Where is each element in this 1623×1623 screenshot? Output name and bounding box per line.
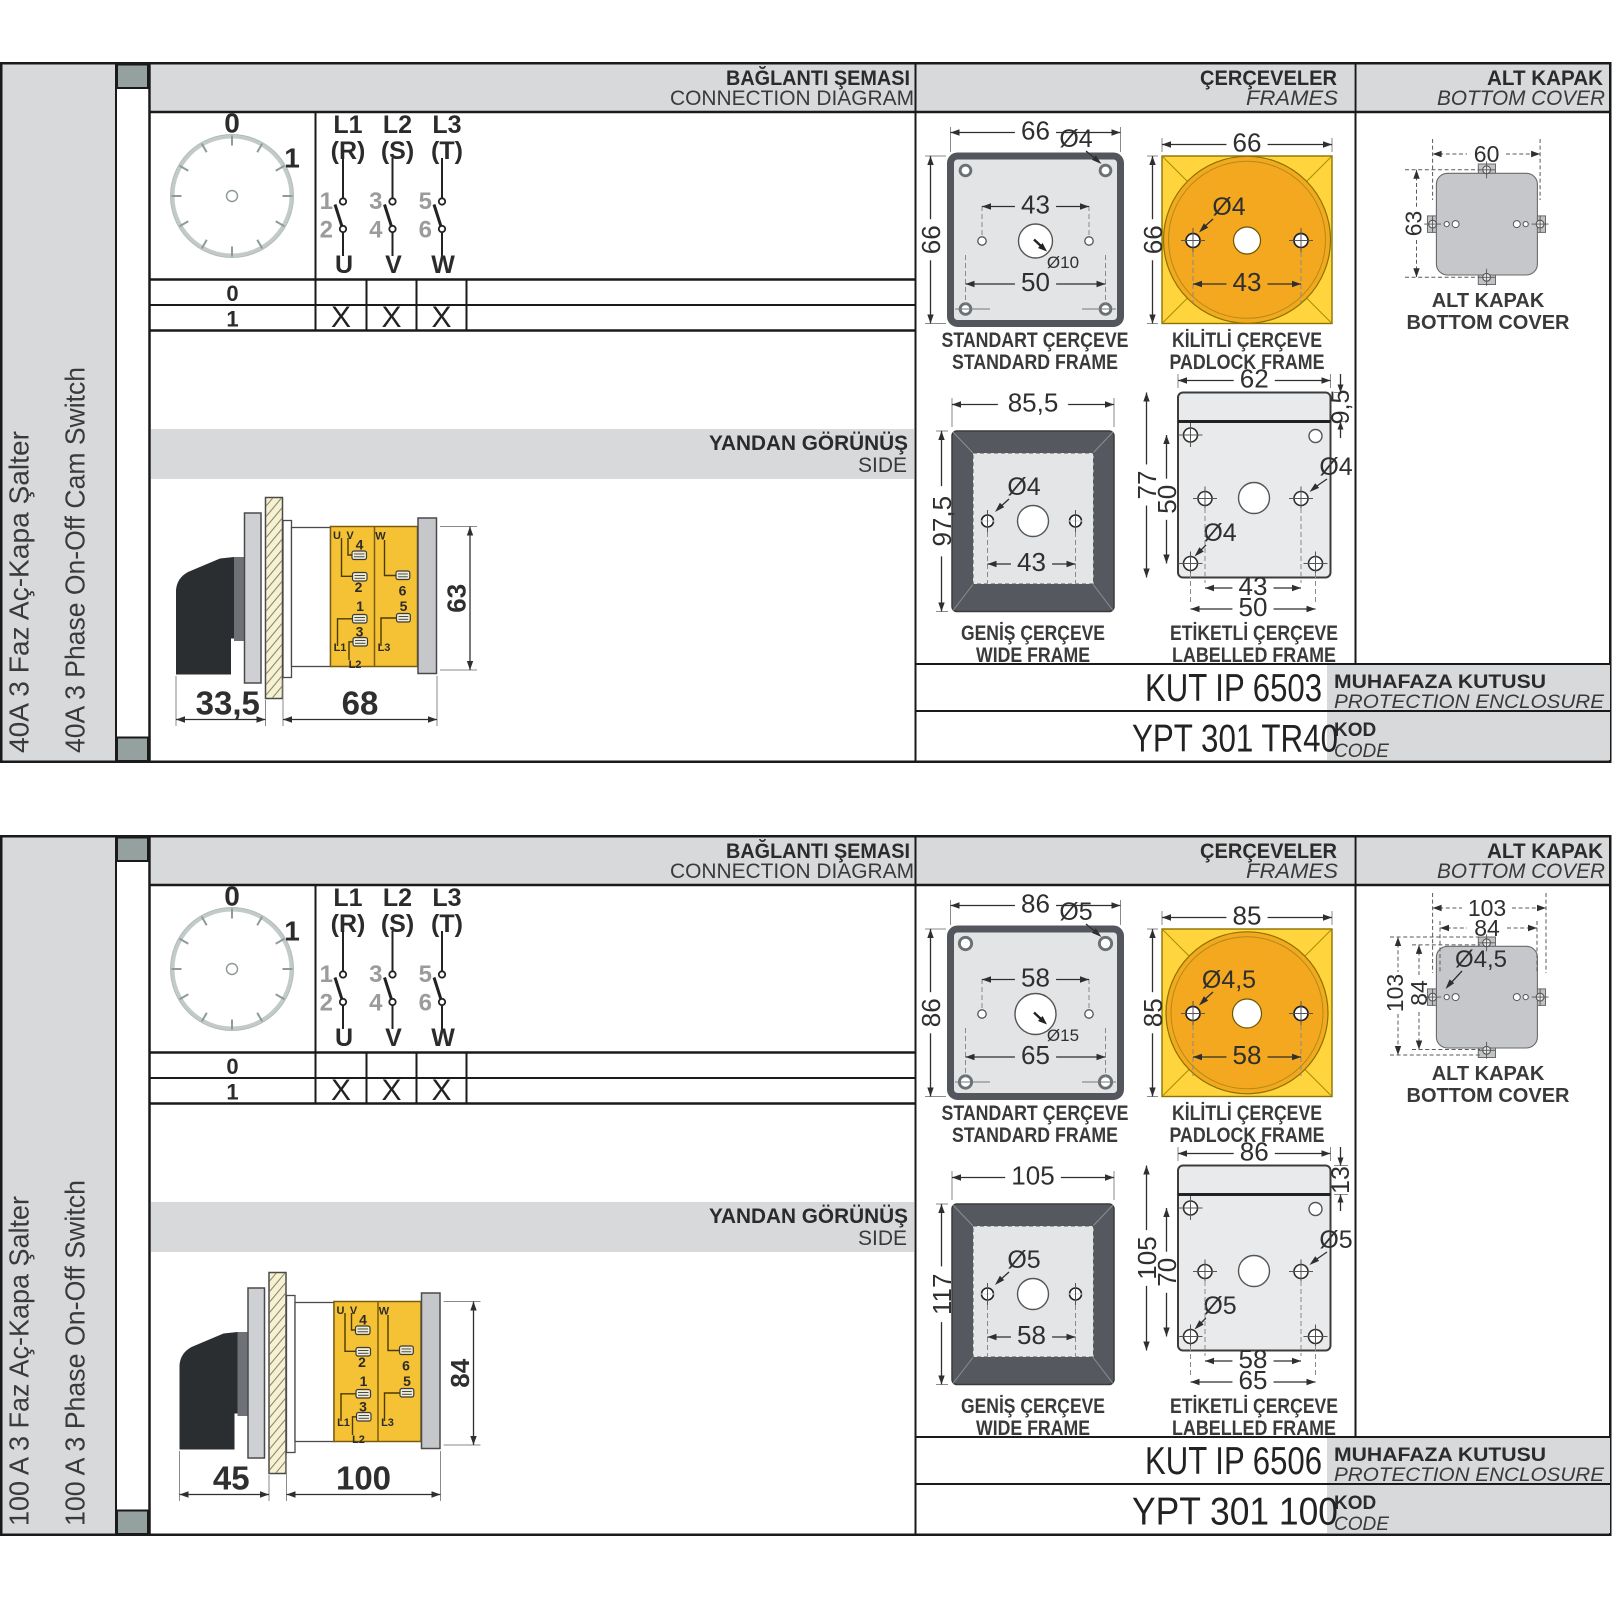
svg-text:5: 5 bbox=[400, 598, 408, 614]
svg-text:BOTTOM COVER: BOTTOM COVER bbox=[1407, 1085, 1571, 1107]
svg-text:Ø5: Ø5 bbox=[1059, 898, 1092, 926]
svg-text:5: 5 bbox=[403, 1373, 411, 1389]
svg-text:GENİŞ ÇERÇEVE: GENİŞ ÇERÇEVE bbox=[961, 622, 1105, 645]
svg-text:Ø10: Ø10 bbox=[1047, 253, 1079, 272]
svg-text:BOTTOM COVER: BOTTOM COVER bbox=[1407, 312, 1571, 334]
svg-text:1: 1 bbox=[284, 143, 300, 174]
svg-text:U: U bbox=[335, 251, 353, 279]
svg-text:L1: L1 bbox=[333, 884, 362, 912]
svg-text:117: 117 bbox=[927, 1274, 957, 1315]
svg-text:X: X bbox=[381, 1074, 401, 1107]
svg-text:Ø4: Ø4 bbox=[1319, 453, 1352, 481]
svg-text:100: 100 bbox=[336, 1460, 391, 1497]
svg-text:0: 0 bbox=[226, 281, 238, 306]
svg-text:LABELLED FRAME: LABELLED FRAME bbox=[1172, 644, 1336, 667]
svg-text:Ø4: Ø4 bbox=[1007, 473, 1040, 501]
svg-text:4: 4 bbox=[369, 217, 383, 244]
svg-text:MUHAFAZA KUTUSU: MUHAFAZA KUTUSU bbox=[1334, 1445, 1546, 1466]
svg-text:68: 68 bbox=[342, 685, 379, 722]
svg-text:FRAMES: FRAMES bbox=[1246, 860, 1338, 883]
svg-text:STANDART ÇERÇEVE: STANDART ÇERÇEVE bbox=[942, 329, 1129, 352]
svg-text:1: 1 bbox=[320, 188, 333, 215]
svg-text:W: W bbox=[375, 531, 386, 543]
svg-text:6: 6 bbox=[419, 217, 432, 244]
svg-text:58: 58 bbox=[1233, 1040, 1262, 1070]
svg-text:4: 4 bbox=[356, 537, 364, 553]
svg-text:40A 3 Faz Aç-Kapa Şalter: 40A 3 Faz Aç-Kapa Şalter bbox=[4, 431, 35, 753]
svg-text:V: V bbox=[385, 251, 402, 279]
svg-text:66: 66 bbox=[1021, 115, 1050, 145]
svg-text:70: 70 bbox=[1152, 1258, 1182, 1287]
svg-text:1: 1 bbox=[360, 1373, 368, 1389]
svg-text:9,5: 9,5 bbox=[1327, 390, 1355, 425]
svg-text:Ø4,5: Ø4,5 bbox=[1455, 946, 1507, 973]
svg-text:50: 50 bbox=[1152, 485, 1182, 514]
svg-text:1: 1 bbox=[356, 598, 364, 614]
svg-text:Ø4: Ø4 bbox=[1203, 519, 1236, 547]
svg-text:L2: L2 bbox=[383, 884, 412, 912]
svg-text:U: U bbox=[337, 1305, 345, 1317]
svg-text:1: 1 bbox=[320, 961, 333, 988]
svg-text:13: 13 bbox=[1327, 1166, 1355, 1194]
svg-text:3: 3 bbox=[369, 188, 382, 215]
svg-text:V: V bbox=[346, 530, 354, 542]
svg-text:63: 63 bbox=[1401, 211, 1427, 237]
svg-text:85,5: 85,5 bbox=[1008, 387, 1059, 417]
svg-text:W: W bbox=[431, 1024, 455, 1052]
svg-text:2: 2 bbox=[320, 990, 333, 1017]
svg-text:(R): (R) bbox=[331, 910, 366, 938]
svg-text:3: 3 bbox=[369, 961, 382, 988]
svg-text:CONNECTION DIAGRAM: CONNECTION DIAGRAM bbox=[670, 860, 914, 883]
svg-text:X: X bbox=[431, 1074, 451, 1107]
svg-text:Ø15: Ø15 bbox=[1047, 1026, 1079, 1045]
svg-text:6: 6 bbox=[419, 990, 432, 1017]
svg-text:1: 1 bbox=[284, 916, 300, 947]
svg-text:KUT IP 6506: KUT IP 6506 bbox=[1145, 1440, 1322, 1483]
svg-text:U: U bbox=[333, 530, 341, 542]
svg-text:SIDE: SIDE bbox=[858, 1227, 907, 1250]
svg-text:L3: L3 bbox=[432, 884, 461, 912]
svg-text:100 A 3 Phase On-Off Switch: 100 A 3 Phase On-Off Switch bbox=[60, 1180, 91, 1526]
svg-text:6: 6 bbox=[399, 583, 407, 599]
svg-text:63: 63 bbox=[442, 584, 472, 613]
svg-text:58: 58 bbox=[1021, 962, 1050, 992]
svg-text:CODE: CODE bbox=[1334, 1514, 1389, 1535]
svg-text:66: 66 bbox=[1233, 127, 1262, 157]
svg-text:YPT 301 TR40: YPT 301 TR40 bbox=[1132, 718, 1338, 761]
svg-text:W: W bbox=[379, 1306, 390, 1318]
svg-text:ETİKETLİ ÇERÇEVE: ETİKETLİ ÇERÇEVE bbox=[1170, 1395, 1338, 1418]
svg-text:L2: L2 bbox=[383, 111, 412, 139]
svg-text:ETİKETLİ ÇERÇEVE: ETİKETLİ ÇERÇEVE bbox=[1170, 622, 1338, 645]
svg-text:2: 2 bbox=[358, 1354, 366, 1370]
svg-text:66: 66 bbox=[916, 225, 946, 254]
svg-text:62: 62 bbox=[1240, 363, 1269, 393]
svg-text:X: X bbox=[431, 301, 451, 334]
svg-text:L3: L3 bbox=[432, 111, 461, 139]
svg-text:45: 45 bbox=[213, 1460, 250, 1497]
svg-text:86: 86 bbox=[1240, 1136, 1269, 1166]
svg-text:(R): (R) bbox=[331, 137, 366, 165]
svg-text:(T): (T) bbox=[431, 910, 463, 938]
svg-text:5: 5 bbox=[419, 961, 432, 988]
svg-text:W: W bbox=[431, 251, 455, 279]
svg-text:33,5: 33,5 bbox=[196, 685, 260, 722]
svg-text:STANDART ÇERÇEVE: STANDART ÇERÇEVE bbox=[942, 1102, 1129, 1125]
svg-text:85: 85 bbox=[1138, 998, 1168, 1027]
svg-text:86: 86 bbox=[1021, 888, 1050, 918]
svg-text:U: U bbox=[335, 1024, 353, 1052]
svg-text:50: 50 bbox=[1239, 592, 1268, 622]
svg-text:X: X bbox=[331, 1074, 351, 1107]
svg-text:43: 43 bbox=[1233, 267, 1262, 297]
svg-text:43: 43 bbox=[1017, 547, 1046, 577]
svg-text:3: 3 bbox=[359, 1399, 367, 1415]
svg-text:40A 3 Phase On-Off Cam Switch: 40A 3 Phase On-Off Cam Switch bbox=[60, 367, 91, 753]
svg-text:L1: L1 bbox=[334, 642, 347, 654]
svg-text:58: 58 bbox=[1017, 1320, 1046, 1350]
svg-text:(T): (T) bbox=[431, 137, 463, 165]
svg-text:86: 86 bbox=[916, 998, 946, 1027]
svg-text:Ø4: Ø4 bbox=[1212, 193, 1245, 221]
svg-text:4: 4 bbox=[359, 1312, 367, 1328]
svg-text:L3: L3 bbox=[381, 1417, 394, 1429]
svg-text:103: 103 bbox=[1382, 974, 1408, 1012]
svg-text:STANDARD FRAME: STANDARD FRAME bbox=[952, 351, 1118, 374]
svg-text:FRAMES: FRAMES bbox=[1246, 87, 1338, 110]
svg-text:1: 1 bbox=[226, 1080, 238, 1105]
svg-text:2: 2 bbox=[320, 217, 333, 244]
svg-text:V: V bbox=[350, 1305, 358, 1317]
svg-text:ALT KAPAK: ALT KAPAK bbox=[1432, 1063, 1545, 1085]
svg-text:KUT IP 6503: KUT IP 6503 bbox=[1145, 667, 1322, 710]
svg-text:84: 84 bbox=[445, 1358, 475, 1387]
svg-text:YPT 301 100: YPT 301 100 bbox=[1132, 1491, 1338, 1534]
svg-text:KİLİTLİ ÇERÇEVE: KİLİTLİ ÇERÇEVE bbox=[1172, 329, 1322, 352]
svg-text:1: 1 bbox=[226, 307, 238, 332]
svg-text:V: V bbox=[385, 1024, 402, 1052]
svg-text:4: 4 bbox=[369, 990, 383, 1017]
svg-text:Ø5: Ø5 bbox=[1007, 1246, 1040, 1274]
svg-text:Ø5: Ø5 bbox=[1203, 1292, 1236, 1320]
svg-text:Ø4,5: Ø4,5 bbox=[1202, 966, 1256, 994]
svg-text:WIDE FRAME: WIDE FRAME bbox=[976, 644, 1090, 667]
svg-text:(S): (S) bbox=[381, 910, 414, 938]
svg-text:0: 0 bbox=[224, 881, 240, 912]
svg-text:85: 85 bbox=[1233, 900, 1262, 930]
svg-text:WIDE FRAME: WIDE FRAME bbox=[976, 1417, 1090, 1440]
svg-text:KOD: KOD bbox=[1334, 720, 1376, 741]
svg-text:3: 3 bbox=[356, 624, 364, 640]
svg-text:97,5: 97,5 bbox=[927, 496, 957, 547]
svg-text:PROTECTION ENCLOSURE: PROTECTION ENCLOSURE bbox=[1334, 1465, 1604, 1486]
svg-text:PROTECTION ENCLOSURE: PROTECTION ENCLOSURE bbox=[1334, 692, 1604, 713]
svg-text:43: 43 bbox=[1021, 189, 1050, 219]
svg-text:STANDARD FRAME: STANDARD FRAME bbox=[952, 1124, 1118, 1147]
svg-text:GENİŞ ÇERÇEVE: GENİŞ ÇERÇEVE bbox=[961, 1395, 1105, 1418]
svg-text:YANDAN GÖRÜNÜŞ: YANDAN GÖRÜNÜŞ bbox=[709, 1205, 908, 1228]
svg-text:X: X bbox=[381, 301, 401, 334]
svg-text:L2: L2 bbox=[352, 1434, 365, 1446]
svg-text:LABELLED FRAME: LABELLED FRAME bbox=[1172, 1417, 1336, 1440]
svg-text:50: 50 bbox=[1021, 267, 1050, 297]
svg-text:ALT KAPAK: ALT KAPAK bbox=[1432, 290, 1545, 312]
svg-text:YANDAN GÖRÜNÜŞ: YANDAN GÖRÜNÜŞ bbox=[709, 432, 908, 455]
svg-text:KOD: KOD bbox=[1334, 1493, 1376, 1514]
svg-text:0: 0 bbox=[224, 108, 240, 139]
svg-text:60: 60 bbox=[1474, 141, 1500, 167]
svg-text:CODE: CODE bbox=[1334, 741, 1389, 762]
svg-text:2: 2 bbox=[355, 579, 363, 595]
svg-text:SIDE: SIDE bbox=[858, 454, 907, 477]
svg-text:6: 6 bbox=[402, 1358, 410, 1374]
svg-text:L1: L1 bbox=[333, 111, 362, 139]
svg-text:65: 65 bbox=[1021, 1040, 1050, 1070]
svg-text:(S): (S) bbox=[381, 137, 414, 165]
svg-text:Ø5: Ø5 bbox=[1319, 1226, 1352, 1254]
svg-text:65: 65 bbox=[1239, 1365, 1268, 1395]
svg-text:105: 105 bbox=[1011, 1160, 1054, 1190]
svg-text:100 A 3 Faz Aç-Kapa Şalter: 100 A 3 Faz Aç-Kapa Şalter bbox=[4, 1196, 35, 1526]
svg-text:0: 0 bbox=[226, 1054, 238, 1079]
svg-text:L2: L2 bbox=[349, 659, 362, 671]
svg-text:KİLİTLİ ÇERÇEVE: KİLİTLİ ÇERÇEVE bbox=[1172, 1102, 1322, 1125]
svg-text:L3: L3 bbox=[378, 642, 391, 654]
svg-text:L1: L1 bbox=[337, 1417, 350, 1429]
svg-text:MUHAFAZA KUTUSU: MUHAFAZA KUTUSU bbox=[1334, 672, 1546, 693]
svg-text:BOTTOM COVER: BOTTOM COVER bbox=[1437, 860, 1605, 883]
svg-text:Ø4: Ø4 bbox=[1059, 125, 1092, 153]
svg-text:84: 84 bbox=[1406, 980, 1432, 1006]
svg-text:5: 5 bbox=[419, 188, 432, 215]
svg-text:BOTTOM COVER: BOTTOM COVER bbox=[1437, 87, 1605, 110]
svg-text:CONNECTION DIAGRAM: CONNECTION DIAGRAM bbox=[670, 87, 914, 110]
svg-text:X: X bbox=[331, 301, 351, 334]
svg-text:66: 66 bbox=[1138, 225, 1168, 254]
